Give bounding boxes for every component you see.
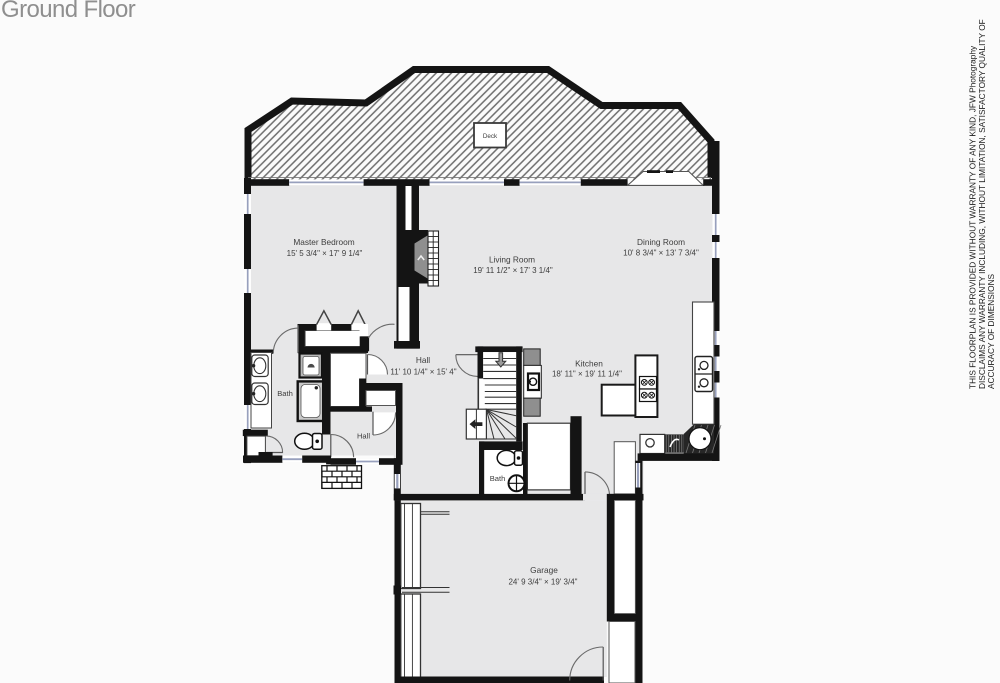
svg-text:Hall: Hall bbox=[357, 432, 370, 441]
svg-text:18' 11" × 19' 11 1/4": 18' 11" × 19' 11 1/4" bbox=[552, 370, 622, 379]
svg-text:Hall: Hall bbox=[416, 355, 430, 365]
svg-text:15' 5 3/4" × 17' 9 1/4": 15' 5 3/4" × 17' 9 1/4" bbox=[287, 249, 363, 258]
svg-text:24' 9 3/4" × 19' 3/4": 24' 9 3/4" × 19' 3/4" bbox=[508, 578, 577, 587]
svg-text:Living Room: Living Room bbox=[489, 255, 535, 265]
svg-text:Deck: Deck bbox=[483, 133, 498, 140]
svg-text:11' 10 1/4" × 15' 4": 11' 10 1/4" × 15' 4" bbox=[390, 368, 456, 377]
svg-text:ACCURACY OF DIMENSIONS: ACCURACY OF DIMENSIONS bbox=[986, 273, 996, 389]
svg-text:Bath: Bath bbox=[490, 474, 506, 483]
svg-text:Dining Room: Dining Room bbox=[637, 237, 685, 247]
svg-text:Garage: Garage bbox=[530, 565, 558, 575]
svg-text:Master Bedroom: Master Bedroom bbox=[293, 237, 354, 247]
svg-text:19' 11 1/2" × 17' 3 1/4": 19' 11 1/2" × 17' 3 1/4" bbox=[473, 266, 553, 275]
svg-text:Bath: Bath bbox=[277, 389, 293, 398]
svg-text:Kitchen: Kitchen bbox=[575, 359, 603, 369]
svg-text:10' 8 3/4" × 13' 7 3/4": 10' 8 3/4" × 13' 7 3/4" bbox=[623, 249, 699, 258]
svg-text:THIS FLOORPLAN IS PROVIDED WIT: THIS FLOORPLAN IS PROVIDED WITHOUT WARRA… bbox=[968, 45, 978, 389]
